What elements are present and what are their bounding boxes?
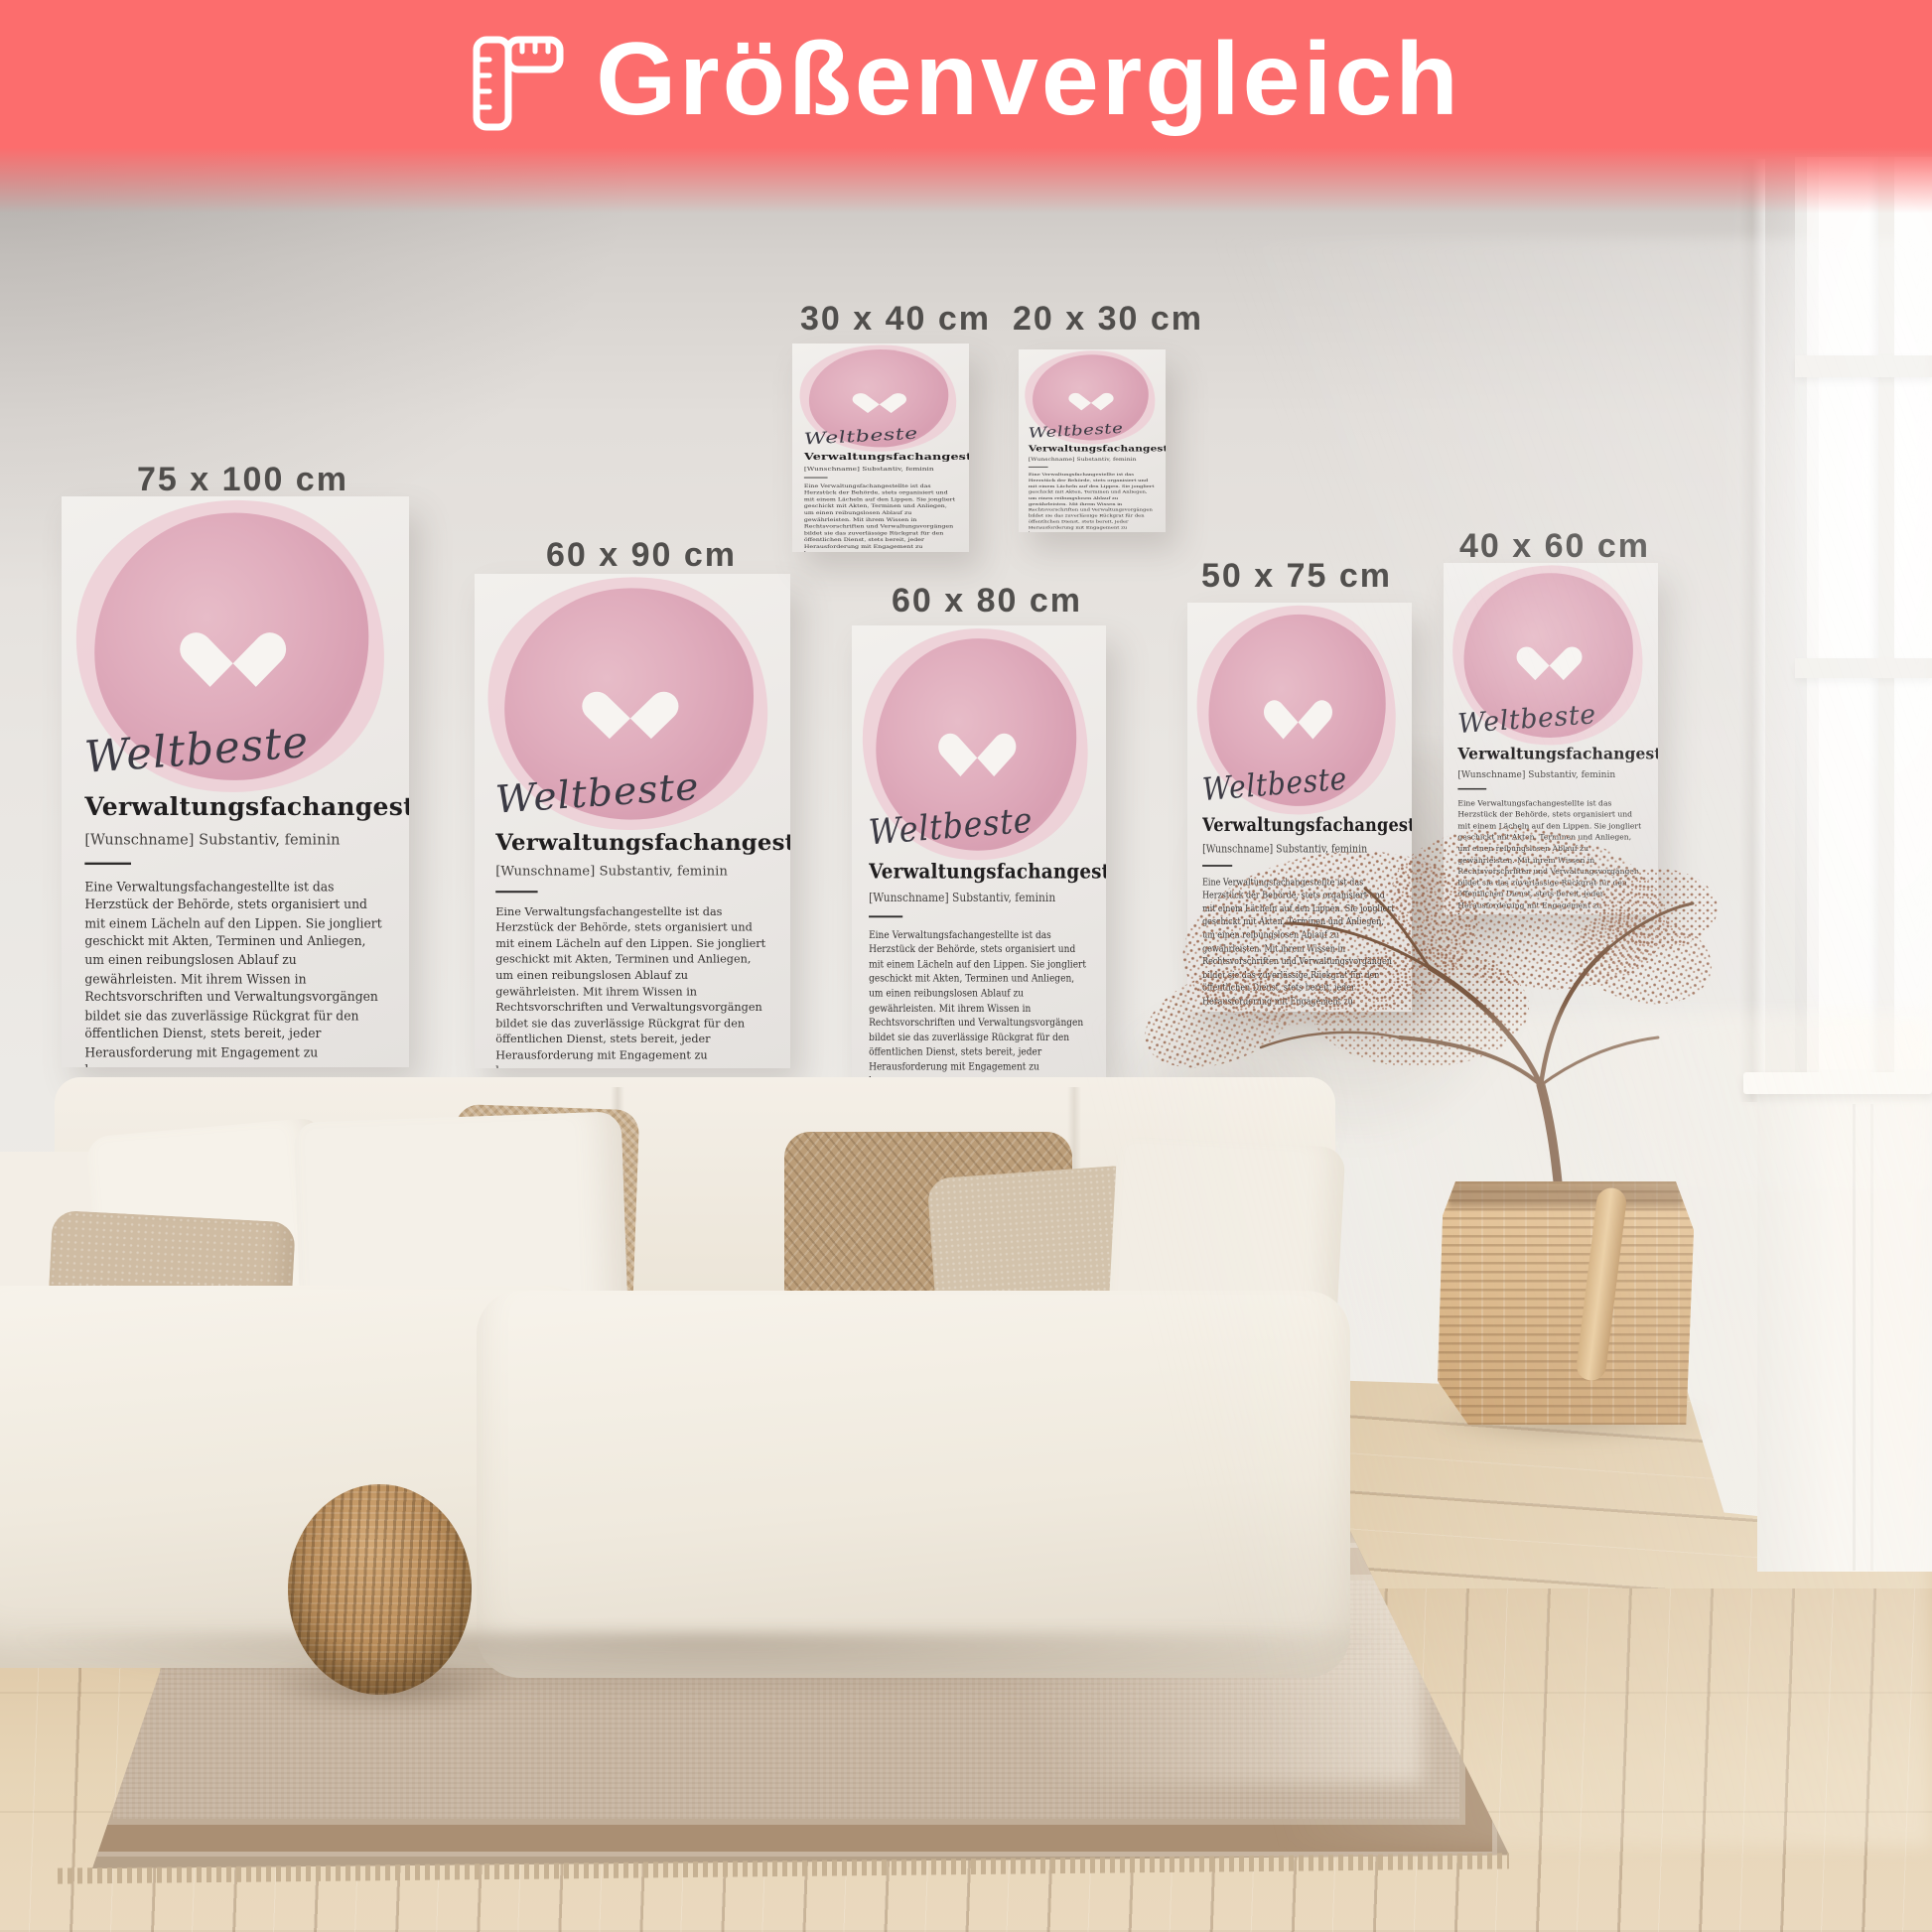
poster-60x80: 60 x 80 cm Weltbeste Verwaltungsfachange… bbox=[852, 625, 1106, 1078]
poster-20x30: 20 x 30 cm Weltbeste Verwaltungsfachange… bbox=[1019, 349, 1166, 532]
heart-icon bbox=[1529, 633, 1569, 670]
wicker-pouf bbox=[288, 1484, 472, 1695]
poster-title: Verwaltungsfachangestellte bbox=[495, 831, 769, 857]
poster-artwork: Weltbeste Verwaltungsfachangestellte [Wu… bbox=[475, 574, 790, 1068]
poster-definition: Eine Verwaltungsfachangestellte ist das … bbox=[495, 904, 769, 1068]
poster-75x100: 75 x 100 cm Weltbeste Verwaltungsfachang… bbox=[62, 496, 409, 1067]
poster-definition: Eine Verwaltungsfachangestellte ist das … bbox=[869, 928, 1089, 1078]
size-label-60x90: 60 x 90 cm bbox=[546, 536, 737, 575]
sofa-seat-cushion bbox=[477, 1291, 1350, 1678]
divider bbox=[84, 862, 131, 864]
size-comparison-scene: 75 x 100 cm Weltbeste Verwaltungsfachang… bbox=[0, 0, 1932, 1932]
panel-seam bbox=[1853, 1104, 1856, 1571]
poster-subtitle: [Wunschname] Substantiv, feminin bbox=[804, 466, 957, 473]
size-label-40x60: 40 x 60 cm bbox=[1459, 527, 1650, 566]
poster-artwork: Weltbeste Verwaltungsfachangestellte [Wu… bbox=[1019, 349, 1166, 532]
poster-definition: Eine Verwaltungsfachangestellte ist das … bbox=[1029, 472, 1156, 532]
window-frame-vertical bbox=[1878, 157, 1894, 1105]
poster-subtitle: [Wunschname] Substantiv, feminin bbox=[495, 863, 769, 878]
heart-icon bbox=[201, 611, 265, 670]
poster-definition: Eine Verwaltungsfachangestellte ist das … bbox=[84, 879, 385, 1067]
poster-subtitle: [Wunschname] Substantiv, feminin bbox=[1457, 768, 1643, 779]
size-label-20x30: 20 x 30 cm bbox=[1013, 300, 1203, 339]
window-frame-horizontal bbox=[1795, 658, 1932, 678]
poster-title: Verwaltungsfachangestellte bbox=[1457, 746, 1643, 763]
heart-icon bbox=[863, 385, 896, 407]
poster-subtitle: [Wunschname] Substantiv, feminin bbox=[84, 830, 385, 848]
window-sill bbox=[1743, 1072, 1932, 1094]
ruler-icon bbox=[471, 30, 566, 135]
window-frame-horizontal bbox=[1795, 355, 1932, 377]
poster-30x40: 30 x 40 cm Weltbeste Verwaltungsfachange… bbox=[792, 344, 969, 552]
divider bbox=[495, 891, 537, 893]
poster-title: Verwaltungsfachangestellte bbox=[869, 861, 1089, 884]
banner-title: Größenvergleich bbox=[596, 26, 1460, 134]
poster-title: Verwaltungsfachangestellte bbox=[1029, 445, 1156, 454]
window-light bbox=[1735, 127, 1932, 1140]
heart-icon bbox=[953, 716, 1001, 762]
heart-icon bbox=[1077, 386, 1105, 405]
heart-icon bbox=[1277, 684, 1318, 727]
poster-artwork: Weltbeste Verwaltungsfachangestellte [Wu… bbox=[62, 496, 409, 1067]
poster-artwork: Weltbeste Verwaltungsfachangestellte [Wu… bbox=[792, 344, 969, 552]
header-banner: Größenvergleich bbox=[0, 0, 1932, 213]
size-label-75x100: 75 x 100 cm bbox=[137, 461, 348, 499]
size-label-30x40: 30 x 40 cm bbox=[800, 300, 991, 339]
size-label-60x80: 60 x 80 cm bbox=[892, 582, 1082, 621]
poster-definition: Eine Verwaltungsfachangestellte ist das … bbox=[804, 483, 957, 552]
divider bbox=[869, 915, 902, 917]
window bbox=[1795, 157, 1932, 1105]
storage-basket bbox=[1438, 1181, 1694, 1425]
poster-artwork: Weltbeste Verwaltungsfachangestellte [Wu… bbox=[852, 625, 1106, 1078]
sofa-shadow bbox=[0, 1633, 1410, 1703]
poster-title: Verwaltungsfachangestellte bbox=[84, 793, 385, 822]
heart-icon bbox=[601, 672, 659, 724]
poster-60x90: 60 x 90 cm Weltbeste Verwaltungsfachange… bbox=[475, 574, 790, 1068]
divider bbox=[804, 478, 828, 479]
poster-title: Verwaltungsfachangestellte bbox=[804, 452, 957, 463]
poster-subtitle: [Wunschname] Substantiv, feminin bbox=[869, 891, 1089, 904]
radiator-panel bbox=[1757, 1080, 1932, 1572]
divider bbox=[1029, 467, 1048, 468]
panel-seam bbox=[1870, 1104, 1873, 1571]
poster-subtitle: [Wunschname] Substantiv, feminin bbox=[1029, 457, 1156, 463]
size-label-50x75: 50 x 75 cm bbox=[1201, 557, 1392, 596]
